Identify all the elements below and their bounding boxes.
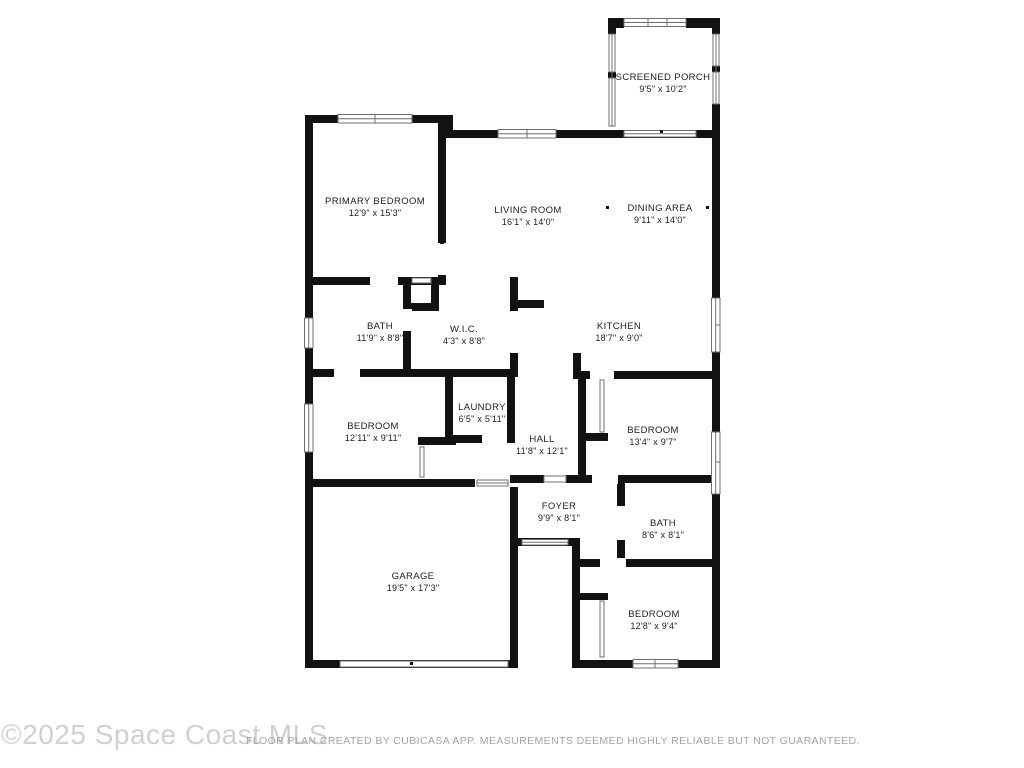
room-dims: 9'9" x 8'1" [538, 513, 580, 525]
floorplan-walls [0, 0, 1024, 768]
room-name: FOYER [538, 501, 580, 513]
room-name: KITCHEN [595, 321, 642, 333]
room-dims: 19'5" x 17'3" [387, 583, 440, 595]
room-dims: 12'8" x 9'4" [628, 621, 680, 633]
room-label-garage: GARAGE 19'5" x 17'3" [387, 571, 440, 595]
room-name: LAUNDRY [458, 402, 506, 414]
room-name: BEDROOM [627, 425, 679, 437]
room-label-hall: HALL 11'8" x 12'1" [516, 434, 568, 458]
room-name: BATH [642, 518, 684, 530]
room-name: W.I.C. [443, 324, 485, 336]
room-name: HALL [516, 434, 568, 446]
room-label-living-room: LIVING ROOM 16'1" x 14'0" [494, 205, 561, 229]
room-label-bath: BATH 11'9" x 8'8" [357, 321, 404, 345]
room-label-primary-bedroom: PRIMARY BEDROOM 12'9" x 15'3" [325, 196, 425, 220]
room-dims: 9'11" x 14'0" [627, 215, 692, 227]
room-label-bath-right: BATH 8'6" x 8'1" [642, 518, 684, 542]
room-name: GARAGE [387, 571, 440, 583]
room-label-bedroom-bottom: BEDROOM 12'8" x 9'4" [628, 609, 680, 633]
room-dims: 11'8" x 12'1" [516, 446, 568, 458]
room-dims: 11'9" x 8'8" [357, 333, 404, 345]
room-dims: 12'11" x 9'11" [345, 433, 402, 445]
room-name: SCREENED PORCH [616, 72, 711, 84]
room-name: DINING AREA [627, 203, 692, 215]
room-dims: 6'5" x 5'11" [458, 414, 506, 426]
room-name: LIVING ROOM [494, 205, 561, 217]
floorplan-image: SCREENED PORCH 9'5" x 10'2" PRIMARY BEDR… [0, 0, 1024, 768]
room-name: BEDROOM [628, 609, 680, 621]
room-dims: 18'7" x 9'0" [595, 333, 642, 345]
room-name: PRIMARY BEDROOM [325, 196, 425, 208]
room-label-screened-porch: SCREENED PORCH 9'5" x 10'2" [616, 72, 711, 96]
room-name: BEDROOM [345, 421, 402, 433]
room-dims: 12'9" x 15'3" [325, 208, 425, 220]
room-dims: 8'6" x 8'1" [642, 530, 684, 542]
room-label-dining-area: DINING AREA 9'11" x 14'0" [627, 203, 692, 227]
room-dims: 9'5" x 10'2" [616, 84, 711, 96]
room-dims: 13'4" x 9'7" [627, 437, 679, 449]
room-label-wic: W.I.C. 4'3" x 8'8" [443, 324, 485, 348]
room-dims: 4'3" x 8'8" [443, 336, 485, 348]
room-label-laundry: LAUNDRY 6'5" x 5'11" [458, 402, 506, 426]
room-label-kitchen: KITCHEN 18'7" x 9'0" [595, 321, 642, 345]
room-label-foyer: FOYER 9'9" x 8'1" [538, 501, 580, 525]
room-label-bedroom-right: BEDROOM 13'4" x 9'7" [627, 425, 679, 449]
room-name: BATH [357, 321, 404, 333]
footer-disclaimer: FLOOR PLAN CREATED BY CUBICASA APP. MEAS… [246, 735, 860, 747]
room-label-bedroom-left: BEDROOM 12'11" x 9'11" [345, 421, 402, 445]
room-dims: 16'1" x 14'0" [494, 217, 561, 229]
